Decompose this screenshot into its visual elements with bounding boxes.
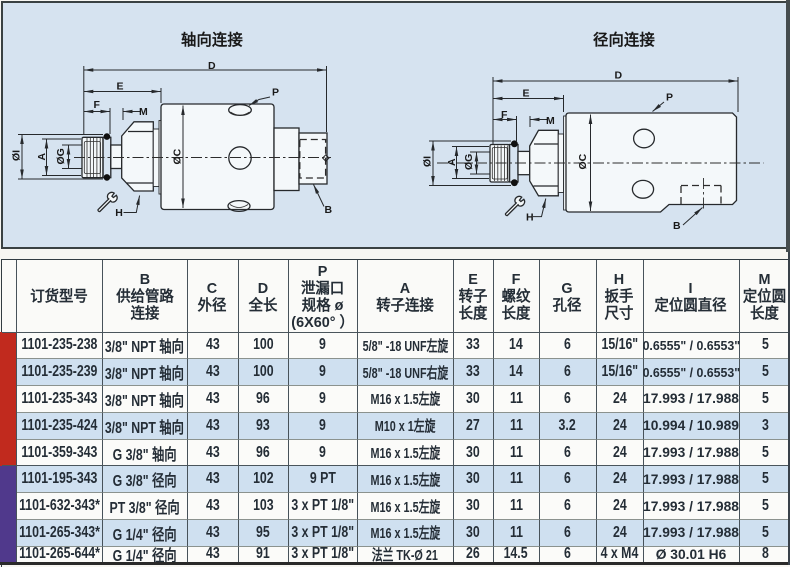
svg-text:ØI: ØI [11,150,23,161]
svg-text:E: E [523,88,530,100]
svg-text:B: B [325,204,333,216]
svg-text:P: P [272,87,279,99]
svg-text:轴向连接: 轴向连接 [181,31,243,49]
svg-text:M: M [546,115,555,127]
svg-text:ØI: ØI [422,156,434,167]
svg-text:A: A [446,158,458,166]
svg-text:M: M [139,106,148,118]
svg-text:B: B [673,220,681,232]
svg-text:ØG: ØG [55,148,67,164]
svg-text:H: H [115,207,123,219]
svg-text:D: D [615,70,623,82]
svg-text:径向连接: 径向连接 [593,31,655,49]
svg-text:ØC: ØC [577,153,589,169]
svg-text:H: H [526,212,534,224]
svg-text:D: D [208,60,216,72]
svg-text:E: E [117,81,124,93]
svg-text:ØG: ØG [463,154,475,170]
svg-text:F: F [94,99,101,111]
svg-text:A: A [36,153,48,161]
svg-text:F: F [501,109,508,121]
svg-text:P: P [666,92,673,104]
svg-text:ØC: ØC [172,148,184,164]
